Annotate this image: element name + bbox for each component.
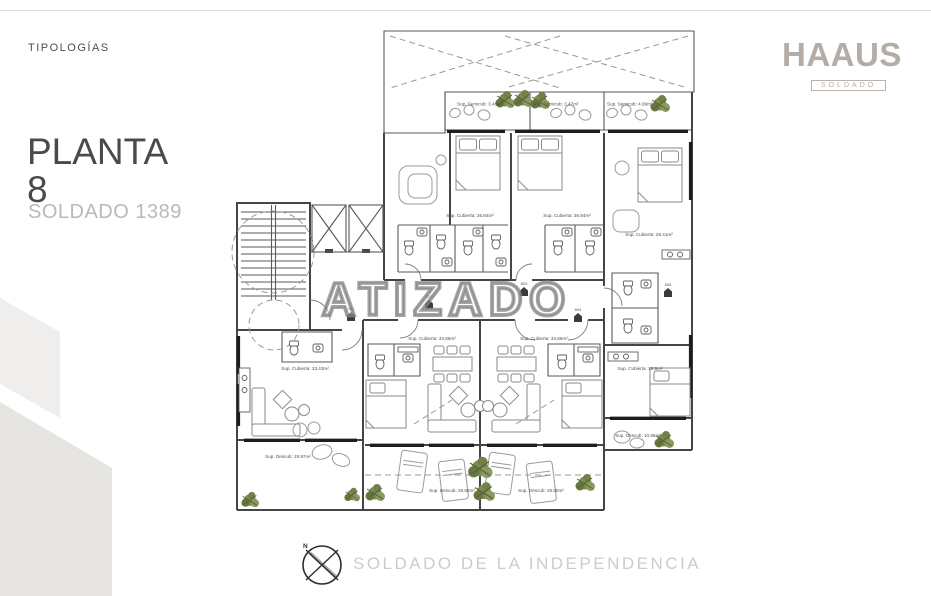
plant-icon (241, 492, 259, 507)
plant-icon (366, 484, 386, 501)
area-label: Sup. Cubierta: 33.86m² (520, 336, 568, 341)
lounge-chair (396, 450, 427, 493)
area-label: Sup. Cubierta: 36.84m² (543, 213, 591, 218)
sofa (252, 388, 310, 436)
area-label: Sup. Semicub: 3.47m² (533, 102, 579, 107)
roof-void (384, 31, 694, 133)
watermark-text: ATIZADO (322, 273, 572, 325)
plant-icon (344, 488, 360, 502)
area-label: Sup. Cubierta: 29.41m² (625, 232, 673, 237)
bed (518, 136, 562, 190)
bed (562, 380, 602, 428)
plant-icon (474, 482, 495, 501)
bed (366, 380, 406, 428)
lounge-chair (438, 459, 469, 502)
unit-number: 804 (575, 307, 582, 312)
elevators (310, 205, 384, 253)
compass-icon: N (303, 543, 341, 584)
area-label: Sup. Descub: 19.97m² (265, 454, 311, 459)
area-label: Sup. Semicub: 3.46m² (457, 102, 503, 107)
area-label: Sup. Descub: 28.80m² (429, 488, 475, 493)
bed (650, 368, 690, 416)
sofa (483, 384, 541, 432)
unit-number: 805 (665, 282, 672, 287)
area-label: Sup. Cubierta: 33.86m² (408, 336, 456, 341)
area-label: Sup. Cubierta: 18.9m² (618, 366, 663, 371)
area-label: Sup. Descub: 10.65m² (615, 433, 661, 438)
area-label: Sup. Descub: 28.80m² (518, 488, 564, 493)
compass-north-label: N (303, 543, 308, 550)
plant-icon (576, 474, 596, 491)
page: TIPOLOGÍAS PLANTA 8 SOLDADO 1389 HAAUS S… (0, 0, 931, 596)
lounge-chair (526, 461, 557, 504)
dining-table (433, 346, 472, 382)
stair-core (232, 203, 314, 350)
balcony-strip (445, 90, 692, 130)
area-label: Sup. Cubierta: 36.84m² (446, 213, 494, 218)
unit-entry-icon (574, 313, 582, 322)
terraces (241, 422, 674, 507)
unit-entry-icon (664, 288, 672, 297)
street-name: SOLDADO DE LA INDEPENDENCIA (353, 554, 701, 574)
bed (638, 148, 682, 202)
watermark: ATIZADO ATIZADO (322, 273, 572, 325)
plant-icon (651, 95, 671, 112)
area-label: Sup. Semicub: 4.99m² (607, 102, 653, 107)
sofa (428, 384, 486, 432)
bed (456, 136, 500, 190)
area-label: Sup. Cubierta: 33.43m² (281, 366, 329, 371)
dining-table (497, 346, 536, 382)
floor-plan: 801 802 803 804 805 Sup. Semicub: 3.46m²… (0, 0, 931, 596)
